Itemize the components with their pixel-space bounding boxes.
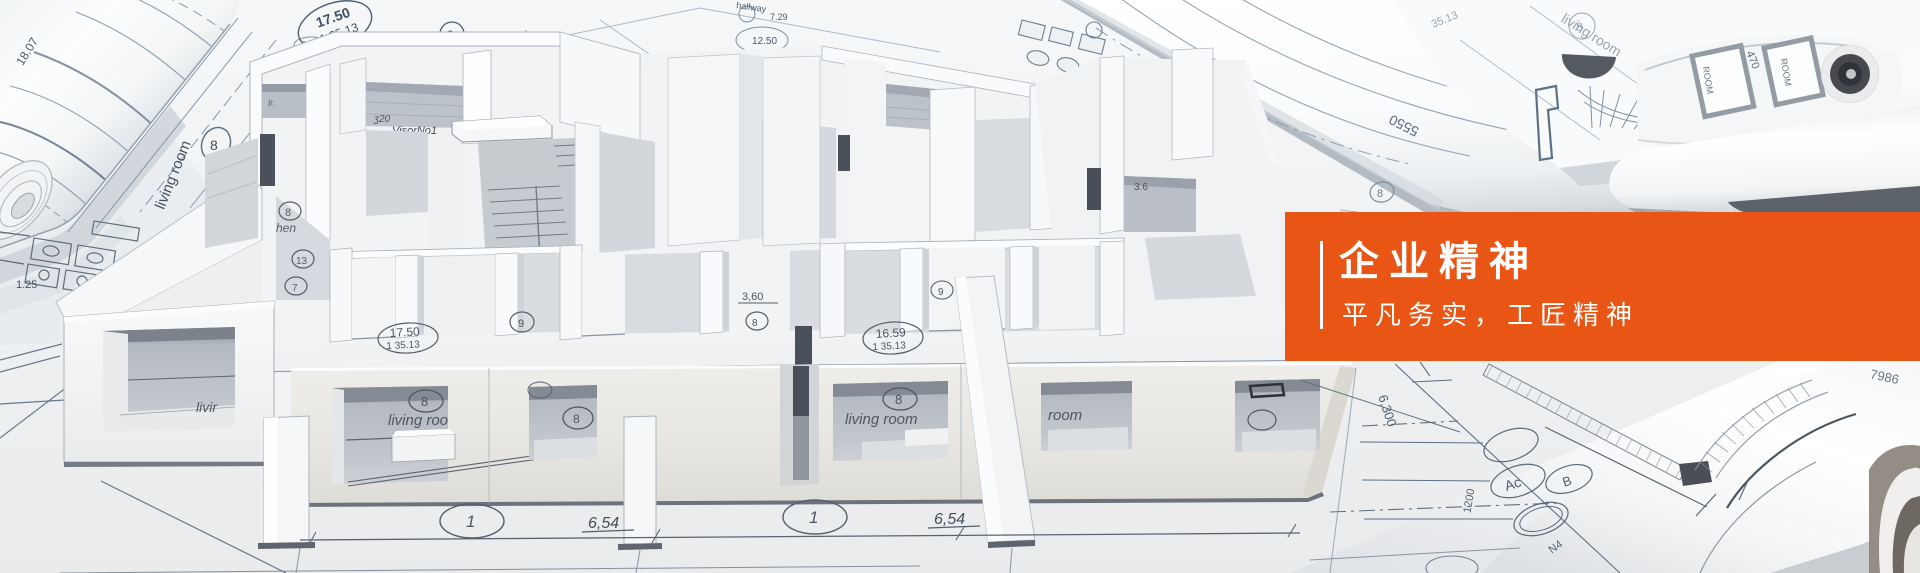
svg-text:room: room bbox=[1048, 407, 1082, 424]
svg-text:17.50: 17.50 bbox=[389, 324, 420, 340]
svg-text:12.50: 12.50 bbox=[752, 36, 777, 47]
svg-text:1 35.13: 1 35.13 bbox=[872, 340, 906, 353]
svg-text:7: 7 bbox=[292, 283, 298, 294]
svg-text:lr.: lr. bbox=[268, 98, 275, 108]
svg-text:9: 9 bbox=[938, 287, 944, 298]
svg-text:16.59: 16.59 bbox=[875, 325, 906, 341]
svg-text:livir: livir bbox=[196, 399, 218, 415]
svg-text:living room: living room bbox=[845, 411, 918, 428]
svg-text:1: 1 bbox=[809, 508, 818, 527]
svg-text:企业精神: 企业精神 bbox=[1339, 239, 1539, 284]
svg-text:3,60: 3,60 bbox=[742, 291, 763, 303]
svg-text:1 35.13: 1 35.13 bbox=[386, 339, 420, 352]
svg-text:1: 1 bbox=[466, 512, 475, 531]
svg-text:8: 8 bbox=[752, 318, 758, 329]
svg-text:8: 8 bbox=[210, 137, 218, 153]
svg-text:平凡务实，工匠精神: 平凡务实，工匠精神 bbox=[1342, 300, 1639, 330]
svg-text:6,54: 6,54 bbox=[934, 511, 965, 528]
svg-text:7.29: 7.29 bbox=[770, 12, 788, 22]
svg-text:8: 8 bbox=[1377, 188, 1383, 200]
svg-text:living roo: living roo bbox=[388, 412, 448, 429]
svg-text:6,54: 6,54 bbox=[588, 515, 619, 532]
svg-text:8: 8 bbox=[573, 412, 580, 426]
svg-text:3.6: 3.6 bbox=[1134, 182, 1148, 193]
svg-text:8: 8 bbox=[421, 394, 428, 409]
svg-text:9: 9 bbox=[518, 318, 524, 330]
svg-text:1.25: 1.25 bbox=[16, 279, 37, 291]
svg-text:hen: hen bbox=[276, 221, 296, 235]
svg-text:8: 8 bbox=[1576, 20, 1583, 34]
svg-text:ʒ20: ʒ20 bbox=[373, 114, 391, 125]
svg-text:8: 8 bbox=[285, 207, 291, 219]
svg-text:8: 8 bbox=[895, 392, 902, 407]
svg-text:13: 13 bbox=[296, 256, 308, 267]
